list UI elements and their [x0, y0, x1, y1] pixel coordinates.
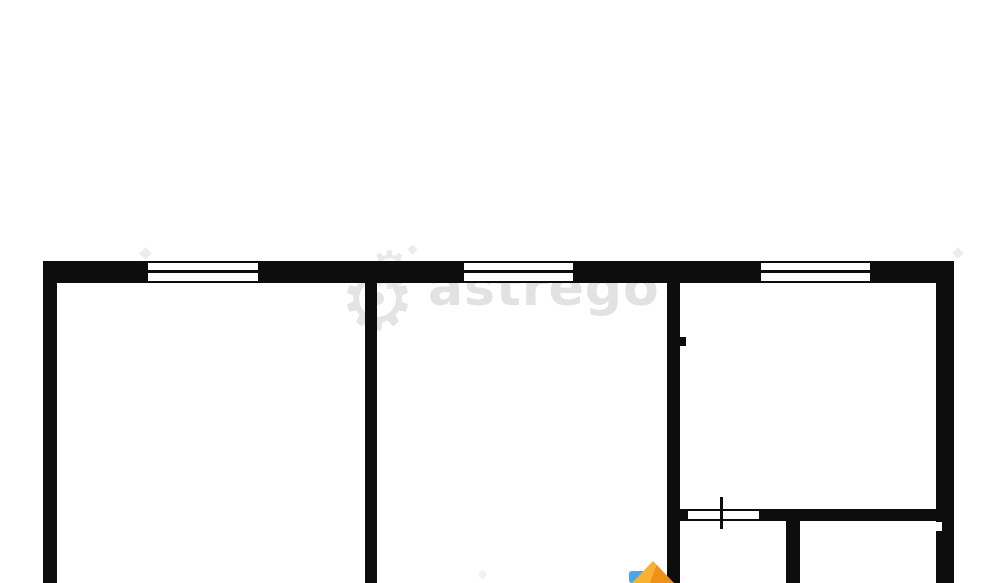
right-wall-notch	[936, 522, 942, 531]
interior-wall-right-divider	[667, 283, 680, 583]
watermark-sparkle	[139, 247, 152, 260]
watermark-sparkle	[952, 247, 963, 258]
floor-plan-canvas: ⚙ ⚙ astrego	[0, 0, 1000, 583]
window-1	[146, 261, 260, 283]
exterior-wall-right	[936, 261, 954, 583]
brand-logo-mark	[629, 561, 675, 583]
exterior-wall-left	[43, 261, 57, 583]
interior-wall-doorjamb-nub	[680, 337, 686, 346]
window-3	[759, 261, 872, 283]
interior-wall-small-room-divider	[786, 521, 800, 583]
interior-wall-left-divider	[365, 283, 377, 583]
interior-wall-horizontal	[759, 509, 936, 521]
door-opening	[686, 509, 761, 521]
door-tick-mark	[720, 497, 723, 529]
window-2	[462, 261, 575, 283]
watermark-sparkle	[478, 570, 488, 580]
